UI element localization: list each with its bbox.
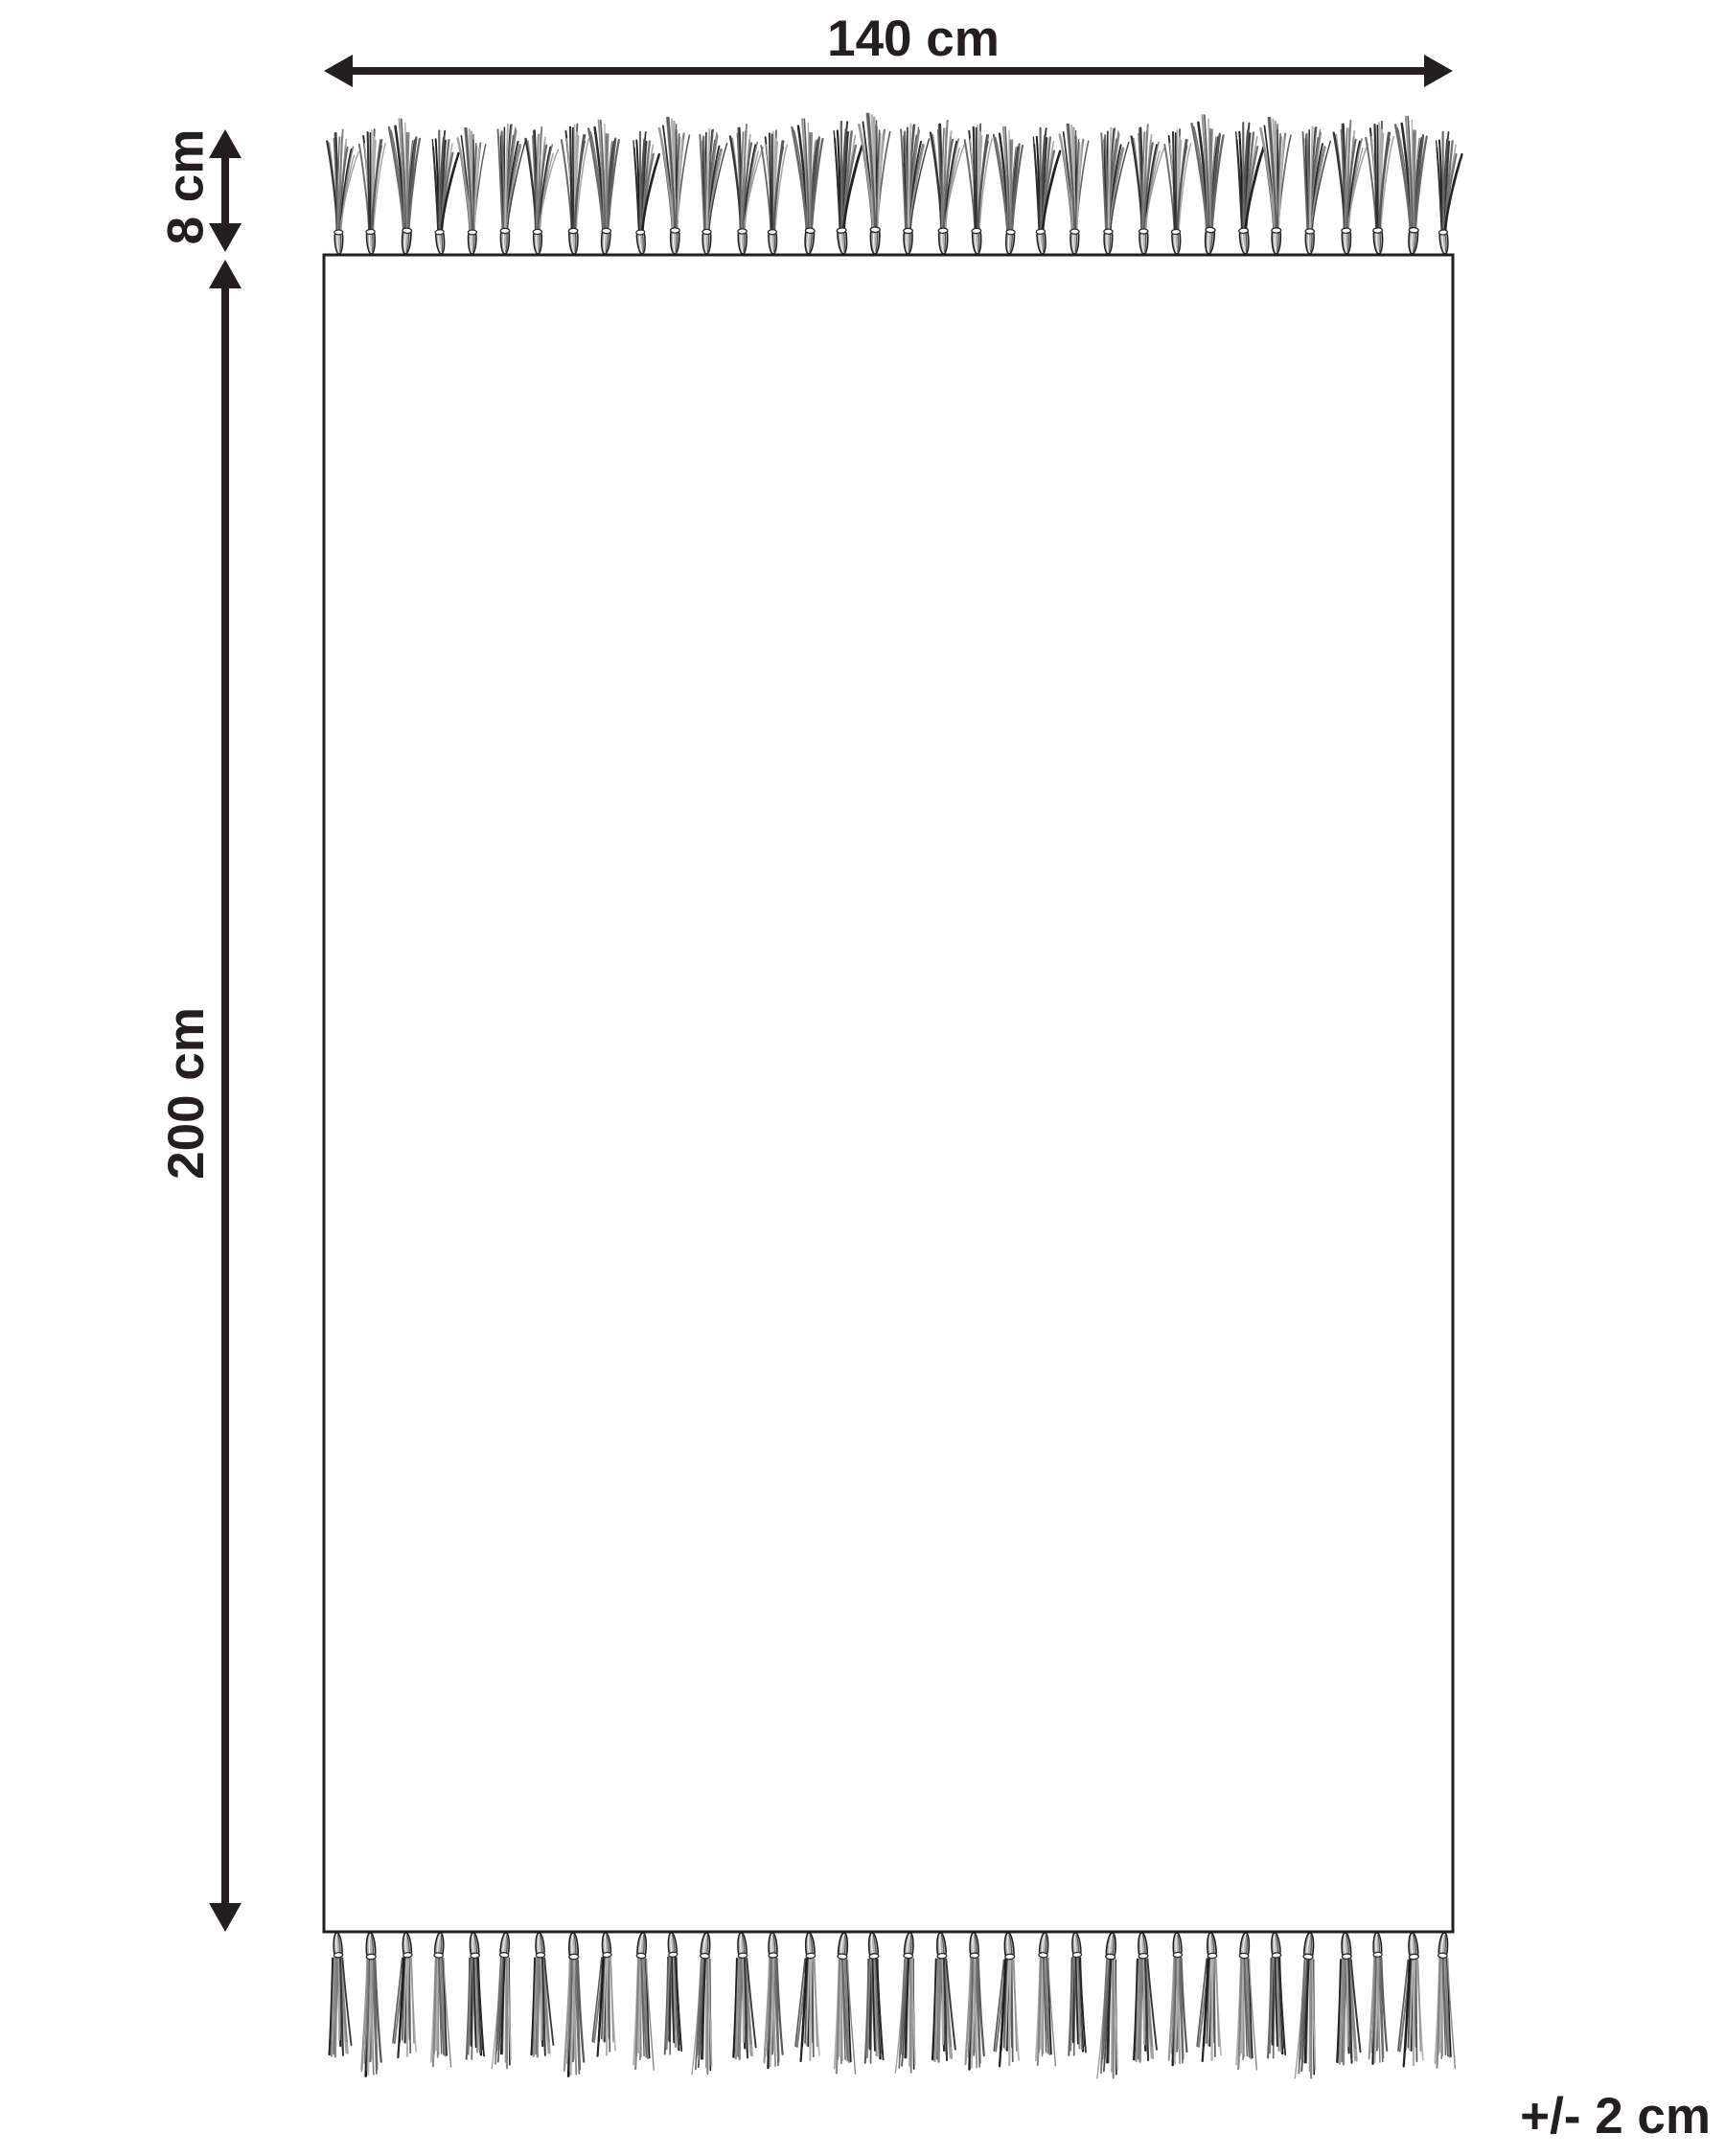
svg-text:8 cm: 8 cm <box>158 129 215 245</box>
svg-text:+/- 2 cm: +/- 2 cm <box>1520 2088 1711 2145</box>
svg-text:140 cm: 140 cm <box>827 11 1000 67</box>
svg-text:200 cm: 200 cm <box>158 1007 215 1180</box>
